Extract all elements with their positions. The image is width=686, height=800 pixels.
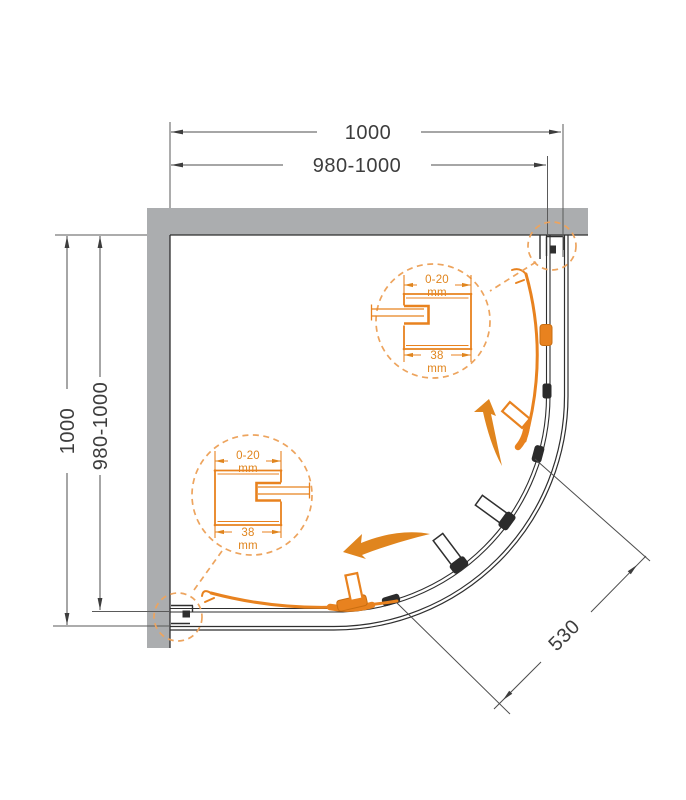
detail-depth-unit: mm bbox=[427, 363, 447, 375]
arrowhead-icon bbox=[462, 353, 471, 357]
roller-icon bbox=[531, 444, 545, 463]
slide-direction-arrow-icon bbox=[343, 532, 430, 559]
top-wall-bracket bbox=[540, 235, 564, 259]
dimension-line bbox=[591, 556, 646, 612]
slide-direction-arrow-icon bbox=[474, 399, 502, 466]
inner-arc bbox=[334, 396, 547, 609]
arrowhead-icon bbox=[98, 598, 103, 610]
dim-top-total: 1000 bbox=[345, 122, 392, 144]
arrowhead-icon bbox=[272, 459, 281, 463]
witness-line bbox=[535, 459, 650, 561]
arrowhead-icon bbox=[549, 130, 561, 135]
glass-strip bbox=[258, 483, 310, 499]
top-wall bbox=[147, 208, 588, 235]
door-handle-icon bbox=[502, 402, 530, 428]
drawing-canvas: 1000 980-1000 1000 980-1000 530 bbox=[0, 0, 686, 800]
detail-range-unit: mm bbox=[427, 287, 447, 299]
arrowhead-icon bbox=[171, 130, 183, 135]
arrowhead-icon bbox=[215, 530, 224, 534]
arrowhead-icon bbox=[272, 530, 281, 534]
dim-entry-width: 530 bbox=[544, 615, 584, 655]
top-dimensions: 1000 980-1000 bbox=[170, 122, 563, 257]
left-wall bbox=[147, 208, 170, 648]
arrowhead-icon bbox=[171, 163, 183, 168]
roller-icon bbox=[543, 384, 552, 399]
profile-nodes bbox=[403, 293, 473, 351]
arrowhead-icon bbox=[98, 236, 103, 248]
sliding-doors-orange bbox=[202, 269, 552, 612]
door-handle-icon bbox=[475, 495, 506, 522]
arrowhead-icon bbox=[65, 236, 70, 248]
shower-enclosure-drawing: 1000 980-1000 1000 980-1000 530 bbox=[0, 0, 686, 800]
arrowhead-icon bbox=[65, 613, 70, 625]
profile-slot bbox=[257, 483, 282, 501]
witness-line bbox=[397, 603, 510, 714]
detail-depth-unit: mm bbox=[238, 540, 258, 552]
arrowhead-icon bbox=[404, 283, 413, 287]
arrowhead-icon bbox=[534, 163, 546, 168]
profile-nodes bbox=[214, 469, 283, 526]
enclosure-frame bbox=[170, 235, 568, 630]
arrowhead-icon bbox=[404, 353, 413, 357]
detail-range-unit: mm bbox=[238, 463, 258, 475]
wall-profile-outline bbox=[215, 471, 281, 526]
dimension-line bbox=[494, 662, 541, 709]
detail-range-value: 0-20 bbox=[425, 274, 449, 286]
dim-left-total: 1000 bbox=[57, 408, 79, 455]
detail-callouts bbox=[154, 222, 576, 641]
callout-leader-line bbox=[194, 551, 222, 590]
detail-depth-value: 38 bbox=[241, 527, 254, 539]
detail-depth-value: 38 bbox=[430, 350, 443, 362]
arrowhead-icon bbox=[462, 283, 471, 287]
outer-arc bbox=[334, 396, 565, 627]
dim-top-adjustable: 980-1000 bbox=[313, 155, 402, 177]
roller-clamp-icon bbox=[540, 325, 552, 346]
door-handle-icon bbox=[345, 573, 362, 601]
wall-profile-outline bbox=[404, 294, 471, 349]
wall-profile-inner-lines bbox=[218, 474, 280, 522]
dim-left-adjustable: 980-1000 bbox=[90, 382, 112, 471]
arrowhead-icon bbox=[215, 459, 224, 463]
detail-range-value: 0-20 bbox=[236, 450, 260, 462]
